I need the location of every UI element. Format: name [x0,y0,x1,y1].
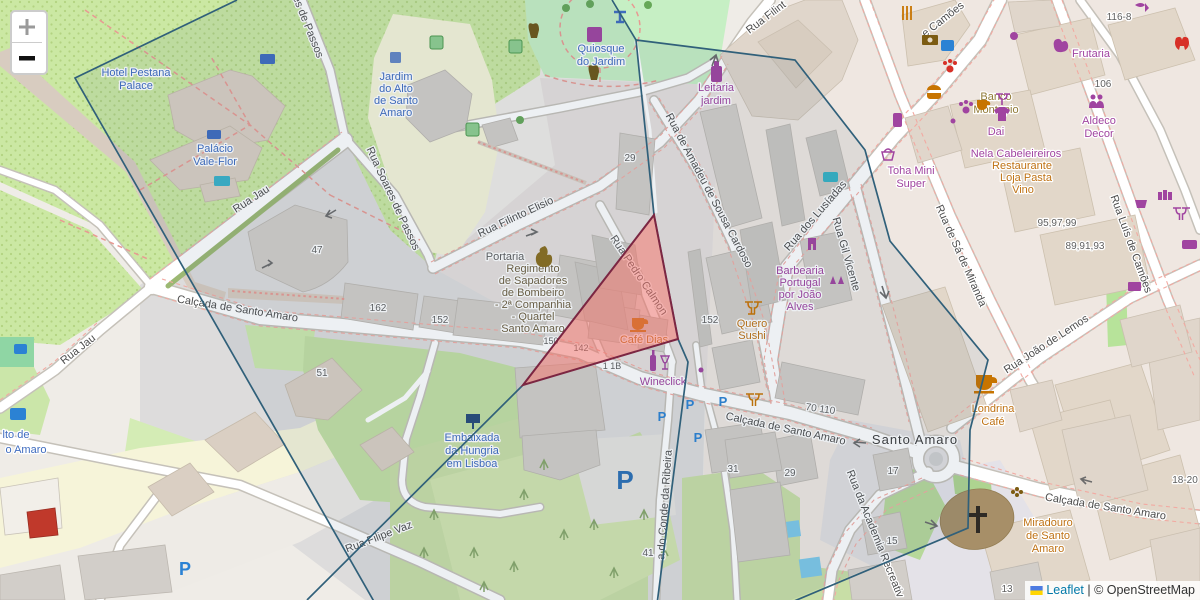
svg-text:o Amaro: o Amaro [6,444,47,456]
svg-text:P: P [179,559,191,579]
svg-text:18-20: 18-20 [1172,475,1198,486]
svg-text:13: 13 [1001,584,1013,595]
svg-text:95,97,99: 95,97,99 [1038,218,1077,229]
svg-text:Dai: Dai [988,126,1005,138]
svg-text:Café: Café [981,416,1004,428]
svg-text:Vino: Vino [1012,184,1034,196]
svg-text:Decor: Decor [1084,128,1114,140]
svg-text:89,91,93: 89,91,93 [1066,241,1105,252]
svg-text:Toha Mini: Toha Mini [887,165,934,177]
svg-text:Miradouro: Miradouro [1023,517,1073,529]
svg-text:Loja Pasta: Loja Pasta [1000,172,1053,184]
svg-text:Amaro: Amaro [1032,543,1064,555]
svg-text:116-8: 116-8 [1107,12,1132,23]
svg-text:106: 106 [1095,79,1112,90]
svg-text:lto de: lto de [3,429,30,441]
svg-text:Nela Cabeleireiros: Nela Cabeleireiros [971,148,1062,160]
svg-text:Aldeco: Aldeco [1082,115,1116,127]
svg-text:Restaurante: Restaurante [992,160,1052,172]
svg-text:Super: Super [896,178,926,190]
svg-text:de Santo: de Santo [1026,530,1070,542]
svg-text:Frutaria: Frutaria [1072,48,1111,60]
svg-text:Londrina: Londrina [972,403,1016,415]
